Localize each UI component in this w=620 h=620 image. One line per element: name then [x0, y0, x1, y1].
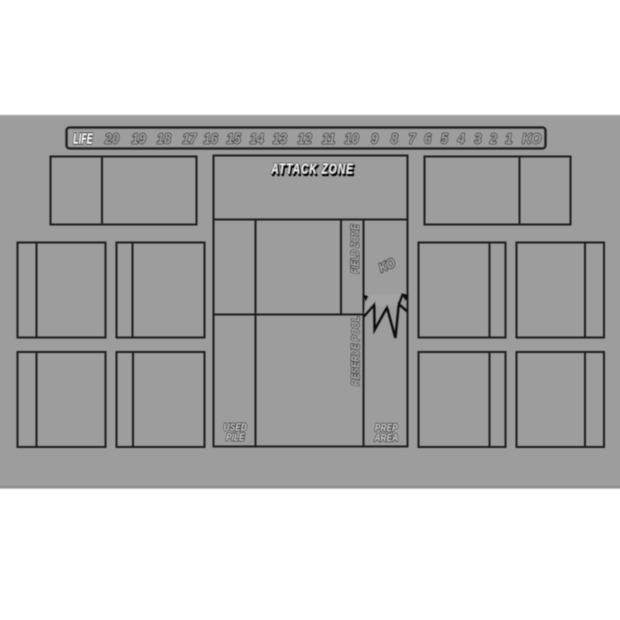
svg-text:3: 3 [474, 129, 481, 146]
svg-text:RESERVE POOL: RESERVE POOL [350, 316, 362, 385]
svg-text:13: 13 [273, 129, 287, 146]
svg-text:12: 12 [298, 129, 312, 146]
svg-text:15: 15 [227, 129, 241, 146]
svg-text:AREA: AREA [374, 432, 399, 444]
svg-text:11: 11 [322, 129, 335, 146]
svg-text:ATTACK ZONE: ATTACK ZONE [270, 161, 354, 177]
svg-text:4: 4 [457, 129, 465, 146]
svg-text:1: 1 [505, 129, 512, 146]
svg-text:FIELD ZONE: FIELD ZONE [350, 224, 362, 273]
svg-text:5: 5 [441, 129, 448, 146]
svg-text:20: 20 [104, 129, 119, 146]
svg-text:10: 10 [345, 129, 359, 146]
svg-text:KO: KO [522, 129, 541, 146]
svg-text:6: 6 [424, 129, 431, 146]
svg-text:LIFE: LIFE [73, 130, 93, 147]
svg-text:14: 14 [250, 129, 264, 146]
svg-text:16: 16 [204, 129, 218, 146]
svg-text:8: 8 [391, 129, 398, 146]
svg-text:7: 7 [408, 129, 416, 146]
svg-text:9: 9 [371, 129, 378, 146]
svg-text:19: 19 [132, 129, 146, 146]
svg-text:17: 17 [182, 129, 197, 146]
svg-text:PILE: PILE [226, 432, 245, 444]
svg-text:18: 18 [157, 129, 171, 146]
svg-text:2: 2 [489, 129, 497, 146]
